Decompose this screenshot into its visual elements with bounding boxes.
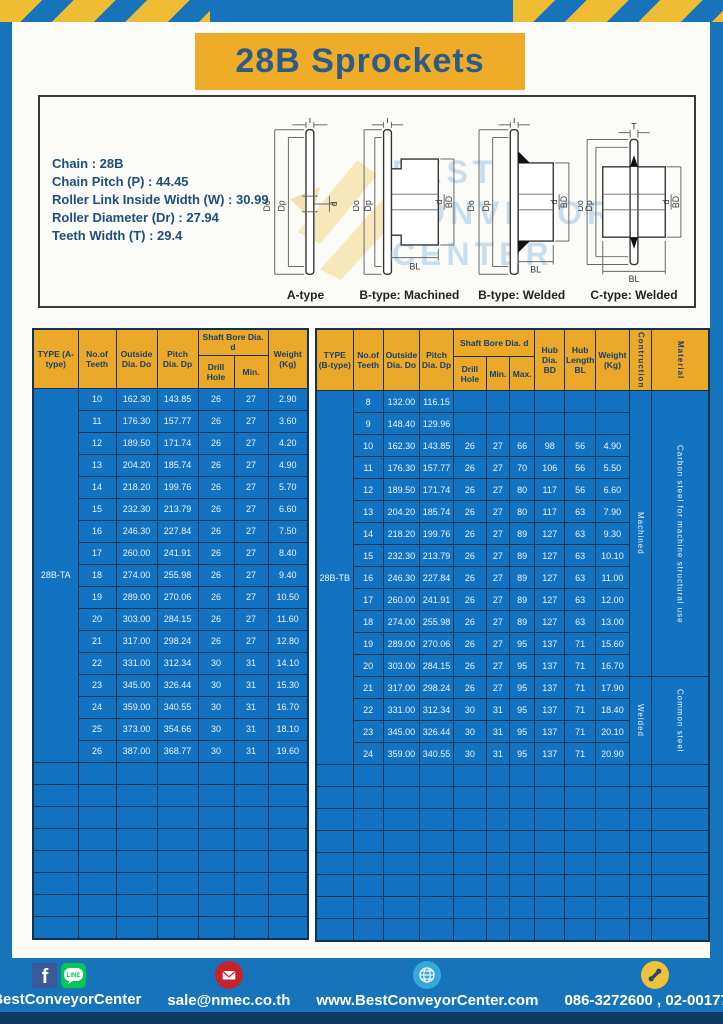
table-cell: [353, 919, 383, 942]
table-cell: [509, 391, 535, 413]
table-cell: [535, 765, 565, 787]
empty-table-row: [33, 916, 308, 939]
table-cell: 9.40: [268, 564, 308, 586]
table-cell: 31: [234, 674, 268, 696]
table-cell: 171.74: [157, 432, 198, 454]
table-cell: [564, 809, 595, 831]
table-cell: 31: [234, 740, 268, 762]
table-cell: 241.91: [157, 542, 198, 564]
table-cell: [116, 916, 157, 939]
table-cell: 227.84: [420, 567, 454, 589]
table-cell: 27: [486, 567, 509, 589]
table-cell: 11: [78, 410, 116, 432]
construction-cell: Machined: [629, 391, 651, 677]
dim-label-bd: BD: [444, 196, 454, 208]
table-cell: 26: [198, 454, 234, 476]
footer-social: f LINE @BestConveyorCenter: [0, 963, 154, 1008]
table-cell: 14: [78, 476, 116, 498]
table-cell: [486, 831, 509, 853]
table-cell: [629, 831, 651, 853]
table-cell: [78, 850, 116, 872]
table-cell: [268, 762, 308, 784]
table-cell: 127: [535, 545, 565, 567]
table-cell: 17: [353, 589, 383, 611]
empty-table-row: [33, 872, 308, 894]
table-cell: 26: [198, 498, 234, 520]
dim-label-dp: Dp: [277, 200, 287, 211]
table-cell: [353, 765, 383, 787]
table-cell: [509, 897, 535, 919]
table-cell: 95: [509, 721, 535, 743]
figure-label-b-type-welded: B-type: Welded: [478, 288, 565, 302]
table-cell: [453, 831, 486, 853]
table-cell: 4.20: [268, 432, 308, 454]
table-cell: [383, 765, 419, 787]
table-cell: 19: [353, 633, 383, 655]
table-cell: 20: [78, 608, 116, 630]
empty-table-row: [316, 831, 709, 853]
dim-label-t: T: [307, 118, 313, 125]
table-cell: 26: [198, 410, 234, 432]
col-header-outside: Outside Dia. Do: [383, 329, 419, 391]
table-cell: 270.06: [420, 633, 454, 655]
table-cell: 298.24: [420, 677, 454, 699]
table-cell: [316, 897, 353, 919]
table-cell: [33, 872, 78, 894]
dim-label-dp: Dp: [584, 200, 594, 211]
table-cell: 3.60: [268, 410, 308, 432]
table-cell: 359.00: [383, 743, 419, 765]
table-cell: [316, 765, 353, 787]
table-cell: 16: [78, 520, 116, 542]
table-cell: 274.00: [383, 611, 419, 633]
table-cell: [157, 872, 198, 894]
table-cell: [535, 919, 565, 942]
facebook-icon: f: [32, 963, 57, 988]
table-cell: 218.20: [383, 523, 419, 545]
empty-table-row: [316, 765, 709, 787]
b-type-machined-diagram: T Do Dp d BD: [353, 118, 465, 286]
table-cell: 284.15: [420, 655, 454, 677]
dim-label-t: T: [385, 118, 391, 125]
table-cell: [651, 765, 709, 787]
table-cell: 373.00: [116, 718, 157, 740]
table-cell: [78, 806, 116, 828]
table-cell: [198, 784, 234, 806]
table-cell: 16: [353, 567, 383, 589]
table-cell: [596, 897, 629, 919]
table-cell: [353, 787, 383, 809]
table-cell: [486, 787, 509, 809]
table-cell: [651, 809, 709, 831]
table-cell: [509, 765, 535, 787]
table-cell: [453, 853, 486, 875]
table-cell: 232.30: [383, 545, 419, 567]
table-cell: 27: [234, 410, 268, 432]
table-cell: 12: [78, 432, 116, 454]
table-cell: [116, 828, 157, 850]
table-cell: 15.60: [596, 633, 629, 655]
table-cell: 137: [535, 721, 565, 743]
table-cell: 26: [453, 435, 486, 457]
table-cell: 317.00: [383, 677, 419, 699]
type-label-cell: 28B-TB: [316, 391, 353, 765]
table-cell: 137: [535, 655, 565, 677]
table-cell: 10: [353, 435, 383, 457]
table-cell: [535, 875, 565, 897]
table-cell: 98: [535, 435, 565, 457]
table-cell: 148.40: [383, 413, 419, 435]
table-cell: [268, 784, 308, 806]
material-cell: Carbon steel for machine structural use: [651, 391, 709, 677]
table-cell: [651, 831, 709, 853]
table-cell: 89: [509, 567, 535, 589]
spec-roller-diameter: Roller Diameter (Dr) : 27.94: [52, 209, 282, 227]
table-cell: [33, 828, 78, 850]
table-cell: [486, 809, 509, 831]
table-cell: [33, 850, 78, 872]
title-banner: 28B Sprockets: [195, 33, 525, 90]
col-header-hub_dia: Hub Dia. BD: [535, 329, 565, 391]
table-cell: 17: [78, 542, 116, 564]
table-cell: 340.55: [420, 743, 454, 765]
table-cell: [564, 875, 595, 897]
table-cell: 56: [564, 457, 595, 479]
table-row: 28B-TB8132.00116.15MachinedCarbon steel …: [316, 391, 709, 413]
table-cell: [353, 809, 383, 831]
table-cell: [564, 413, 595, 435]
table-cell: 30: [198, 696, 234, 718]
table-cell: 27: [234, 520, 268, 542]
globe-icon: [413, 961, 441, 989]
dim-label-dp: Dp: [363, 200, 373, 211]
table-cell: 89: [509, 589, 535, 611]
table-cell: 27: [486, 545, 509, 567]
table-cell: 270.06: [157, 586, 198, 608]
table-cell: 26: [198, 432, 234, 454]
figure-c-type-welded: T Do Dp d BD: [578, 105, 690, 302]
table-cell: [198, 762, 234, 784]
dim-label-d: d: [661, 199, 671, 204]
table-cell: 27: [234, 454, 268, 476]
empty-table-row: [316, 875, 709, 897]
table-cell: 189.50: [383, 479, 419, 501]
table-cell: 11.60: [268, 608, 308, 630]
email-address: sale@nmec.co.th: [167, 992, 290, 1009]
chain-specs: Chain : 28B Chain Pitch (P) : 44.45 Roll…: [52, 155, 282, 245]
table-cell: 26: [453, 479, 486, 501]
dim-label-d: d: [435, 199, 445, 204]
hazard-stripes-left: [0, 0, 210, 22]
table-cell: 345.00: [383, 721, 419, 743]
table-cell: [78, 916, 116, 939]
hazard-stripes-right: [513, 0, 723, 22]
table-cell: 30: [198, 674, 234, 696]
table-cell: 26: [453, 589, 486, 611]
table-cell: 127: [535, 589, 565, 611]
table-cell: [535, 897, 565, 919]
table-cell: [564, 765, 595, 787]
table-cell: [157, 784, 198, 806]
table-cell: 14: [353, 523, 383, 545]
table-cell: 19: [78, 586, 116, 608]
table-cell: 5.70: [268, 476, 308, 498]
table-cell: 20: [353, 655, 383, 677]
table-cell: 95: [509, 677, 535, 699]
table-cell: 7.90: [596, 501, 629, 523]
table-cell: 227.84: [157, 520, 198, 542]
table-cell: [509, 875, 535, 897]
table-cell: 18.40: [596, 699, 629, 721]
table-cell: [268, 872, 308, 894]
table-cell: [268, 894, 308, 916]
table-cell: [535, 809, 565, 831]
table-cell: [420, 831, 454, 853]
table-cell: [596, 831, 629, 853]
empty-table-row: [316, 809, 709, 831]
dim-label-do: Do: [466, 200, 476, 211]
empty-table-row: [33, 894, 308, 916]
col-header-pitch: Pitch Dia. Dp: [420, 329, 454, 391]
table-cell: 89: [509, 545, 535, 567]
table-cell: 27: [234, 498, 268, 520]
table-cell: [596, 787, 629, 809]
table-cell: 71: [564, 699, 595, 721]
table-cell: [116, 850, 157, 872]
phone-icon: [641, 961, 669, 989]
table-cell: 27: [486, 523, 509, 545]
table-cell: 80: [509, 501, 535, 523]
sprocket-figures: T Do Dp d A-type: [258, 105, 690, 302]
table-cell: [651, 853, 709, 875]
table-cell: 368.77: [157, 740, 198, 762]
table-cell: 89: [509, 523, 535, 545]
table-cell: [198, 850, 234, 872]
table-cell: 13: [78, 454, 116, 476]
table-cell: 387.00: [116, 740, 157, 762]
table-cell: 16.70: [596, 655, 629, 677]
sprocket-table-b-type: TYPE (B-type)No.of TeethOutside Dia. DoP…: [315, 328, 710, 942]
table-cell: 18: [78, 564, 116, 586]
table-cell: [157, 850, 198, 872]
table-cell: 19.60: [268, 740, 308, 762]
table-cell: [383, 919, 419, 942]
table-cell: 8.40: [268, 542, 308, 564]
table-cell: [535, 413, 565, 435]
table-cell: [234, 784, 268, 806]
table-cell: [33, 762, 78, 784]
table-cell: [651, 897, 709, 919]
table-cell: 117: [535, 479, 565, 501]
spec-chain: Chain : 28B: [52, 155, 282, 173]
table-cell: [596, 875, 629, 897]
table-cell: 317.00: [116, 630, 157, 652]
table-cell: [629, 765, 651, 787]
footer-website: www.BestConveyorCenter.com: [303, 961, 551, 1009]
table-cell: 326.44: [420, 721, 454, 743]
type-label-cell: 28B-TA: [33, 388, 78, 762]
col-header-weight: Weight (Kg): [268, 329, 308, 388]
table-cell: [509, 919, 535, 942]
dim-label-bd: BD: [671, 196, 681, 208]
table-cell: [116, 784, 157, 806]
table-cell: [383, 809, 419, 831]
construction-cell: Welded: [629, 677, 651, 765]
table-cell: 31: [486, 743, 509, 765]
table-cell: [564, 831, 595, 853]
table-cell: [353, 831, 383, 853]
col-header-teeth: No.of Teeth: [353, 329, 383, 391]
spec-roller-width: Roller Link Inside Width (W) : 30.99: [52, 191, 282, 209]
sprocket-table-a-type: TYPE (A-type)No.of TeethOutside Dia. DoP…: [32, 328, 309, 940]
table-cell: 10.50: [268, 586, 308, 608]
table-row: 21317.00298.242627951377117.90WeldedComm…: [316, 677, 709, 699]
figure-b-type-welded: T Do Dp d BD: [466, 105, 578, 302]
table-cell: [509, 831, 535, 853]
table-cell: 12: [353, 479, 383, 501]
table-cell: [564, 919, 595, 942]
table-cell: 2.90: [268, 388, 308, 410]
bottom-navy-strip: [0, 1012, 723, 1024]
table-cell: 15: [353, 545, 383, 567]
col-header-drill: Drill Hole: [453, 356, 486, 391]
table-cell: [453, 391, 486, 413]
table-cell: [629, 875, 651, 897]
table-cell: 331.00: [383, 699, 419, 721]
table-cell: 127: [535, 611, 565, 633]
table-cell: [234, 916, 268, 939]
table-cell: [198, 872, 234, 894]
table-cell: 10: [78, 388, 116, 410]
table-cell: [157, 916, 198, 939]
table-cell: 63: [564, 545, 595, 567]
table-cell: [78, 894, 116, 916]
table-cell: 27: [486, 501, 509, 523]
empty-table-row: [33, 784, 308, 806]
table-cell: 232.30: [116, 498, 157, 520]
table-cell: 14.10: [268, 652, 308, 674]
table-cell: [234, 762, 268, 784]
table-cell: 13.00: [596, 611, 629, 633]
table-cell: 162.30: [383, 435, 419, 457]
table-cell: 26: [198, 542, 234, 564]
spec-pitch: Chain Pitch (P) : 44.45: [52, 173, 282, 191]
table-cell: [78, 784, 116, 806]
table-cell: 213.79: [420, 545, 454, 567]
table-cell: 9: [353, 413, 383, 435]
table-cell: [383, 853, 419, 875]
table-cell: 21: [78, 630, 116, 652]
table-cell: 26: [453, 501, 486, 523]
table-cell: 95: [509, 633, 535, 655]
table-cell: 71: [564, 677, 595, 699]
table-cell: [420, 765, 454, 787]
line-icon-label: LINE: [67, 973, 81, 979]
table-cell: 27: [486, 655, 509, 677]
table-cell: 185.74: [420, 501, 454, 523]
table-cell: 27: [234, 608, 268, 630]
table-cell: 31: [486, 699, 509, 721]
dim-label-do: Do: [262, 200, 272, 211]
table-cell: [564, 787, 595, 809]
table-cell: [116, 872, 157, 894]
table-cell: [157, 806, 198, 828]
table-cell: 63: [564, 611, 595, 633]
table-cell: 176.30: [116, 410, 157, 432]
table-cell: 26: [198, 476, 234, 498]
table-cell: 95: [509, 655, 535, 677]
table-cell: [535, 391, 565, 413]
table-cell: 137: [535, 633, 565, 655]
table-cell: 16.70: [268, 696, 308, 718]
table-cell: [316, 853, 353, 875]
table-cell: 63: [564, 501, 595, 523]
table-cell: 27: [486, 677, 509, 699]
col-header-construction: Contruction: [629, 329, 651, 391]
table-cell: [420, 787, 454, 809]
table-cell: 4.90: [596, 435, 629, 457]
table-cell: 26: [198, 520, 234, 542]
email-icon: [215, 961, 243, 989]
table-cell: [198, 894, 234, 916]
table-cell: 66: [509, 435, 535, 457]
table-cell: 7.50: [268, 520, 308, 542]
table-cell: 185.74: [157, 454, 198, 476]
table-cell: 157.77: [157, 410, 198, 432]
table-cell: [353, 875, 383, 897]
table-cell: 24: [353, 743, 383, 765]
table-cell: [509, 787, 535, 809]
col-header-min: Min.: [234, 355, 268, 388]
table-cell: [596, 765, 629, 787]
table-cell: 106: [535, 457, 565, 479]
col-header-max: Max.: [509, 356, 535, 391]
empty-table-row: [316, 787, 709, 809]
table-cell: [453, 919, 486, 942]
table-cell: 284.15: [157, 608, 198, 630]
table-cell: 26: [198, 630, 234, 652]
table-cell: 143.85: [420, 435, 454, 457]
dim-label-dp: Dp: [480, 200, 490, 211]
table-cell: 27: [234, 432, 268, 454]
table-cell: [234, 806, 268, 828]
table-cell: 127: [535, 567, 565, 589]
figure-label-c-type-welded: C-type: Welded: [590, 288, 677, 302]
table-cell: 6.60: [596, 479, 629, 501]
empty-table-row: [316, 853, 709, 875]
table-cell: [509, 853, 535, 875]
table-cell: 27: [486, 435, 509, 457]
table-cell: 22: [353, 699, 383, 721]
table-cell: [198, 916, 234, 939]
table-cell: [157, 894, 198, 916]
table-cell: [198, 828, 234, 850]
table-cell: 24: [78, 696, 116, 718]
table-cell: [486, 765, 509, 787]
dim-label-t: T: [511, 118, 517, 125]
table-cell: [535, 787, 565, 809]
table-cell: 137: [535, 743, 565, 765]
col-header-weight: Weight (Kg): [596, 329, 629, 391]
website-url: www.BestConveyorCenter.com: [316, 992, 538, 1009]
table-cell: [353, 897, 383, 919]
table-cell: 213.79: [157, 498, 198, 520]
col-header-bore_group: Shaft Bore Dia. d: [198, 329, 268, 355]
table-cell: 31: [486, 721, 509, 743]
table-cell: 117: [535, 501, 565, 523]
table-cell: [116, 806, 157, 828]
table-cell: [486, 413, 509, 435]
